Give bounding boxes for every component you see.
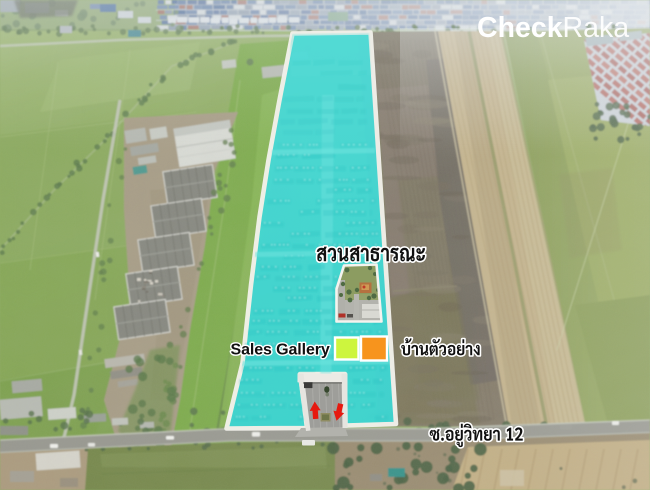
svg-text:CheckRaka: CheckRaka — [477, 12, 629, 44]
svg-text:Sales Gallery: Sales Gallery — [231, 341, 330, 358]
